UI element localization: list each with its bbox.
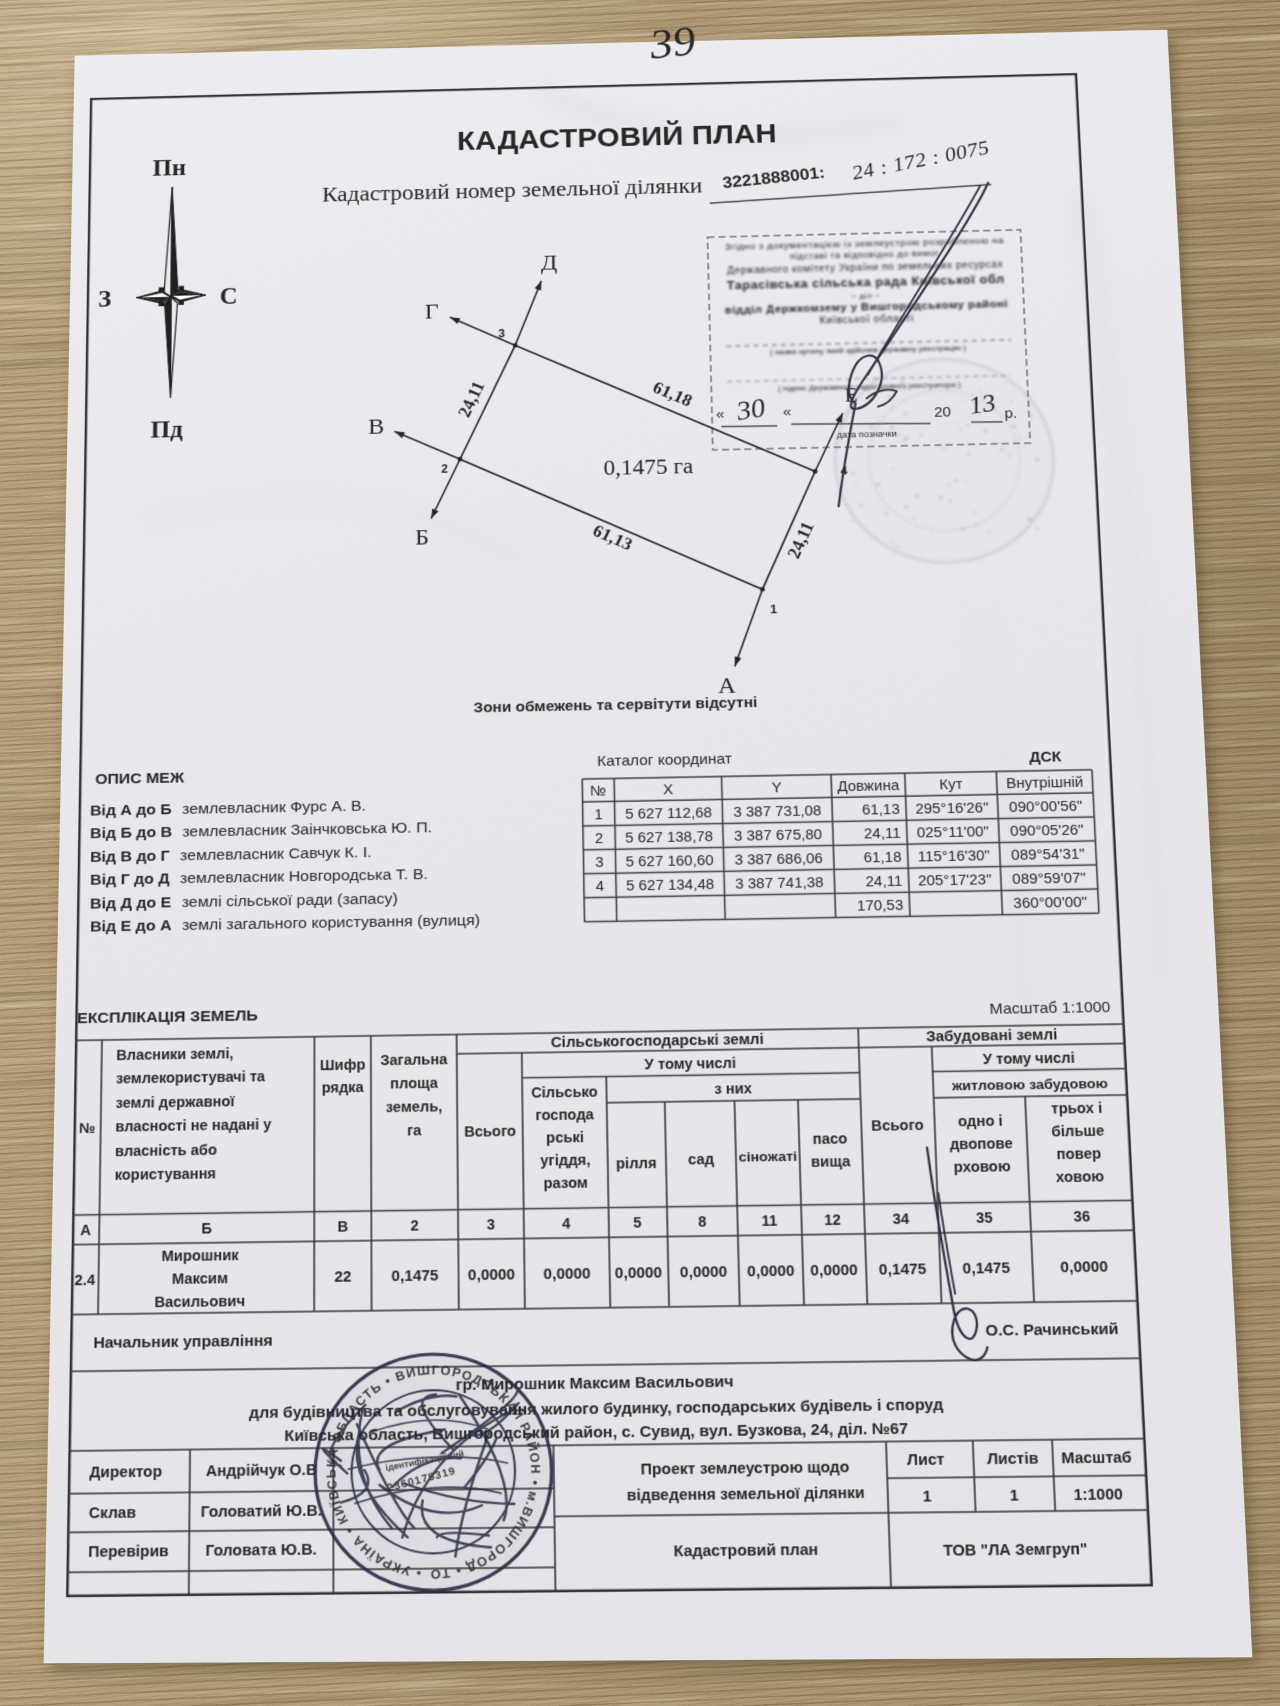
svg-text:Масштаб: Масштаб: [1061, 1449, 1132, 1467]
svg-text:вища: вища: [811, 1153, 852, 1170]
svg-text:О.С. Рачинський: О.С. Рачинський: [985, 1319, 1119, 1339]
svg-text:3 387 731,08: 3 387 731,08: [733, 802, 821, 819]
svg-text:360°00'00": 360°00'00": [1013, 894, 1088, 911]
svg-text:2: 2: [411, 1217, 419, 1234]
svg-text:А: А: [80, 1222, 92, 1239]
svg-text:24,11: 24,11: [454, 378, 489, 420]
svg-text:угіддя,: угіддя,: [540, 1152, 590, 1169]
svg-text:рховою: рховою: [953, 1158, 1011, 1175]
svg-text:2: 2: [595, 830, 604, 846]
svg-text:№: №: [79, 1120, 96, 1137]
svg-text:35: 35: [976, 1209, 993, 1226]
svg-text:36: 36: [1073, 1208, 1090, 1225]
svg-text:5 627 134,48: 5 627 134,48: [626, 876, 715, 894]
svg-text:Листів: Листів: [987, 1450, 1039, 1468]
svg-text:Начальник управління: Начальник управління: [93, 1331, 272, 1351]
svg-text:3: 3: [595, 854, 604, 870]
svg-text:24,11: 24,11: [783, 519, 818, 561]
svg-text:0,0000: 0,0000: [615, 1264, 663, 1281]
svg-text:з них: з них: [714, 1080, 753, 1097]
svg-text:3 387 675,80: 3 387 675,80: [734, 826, 823, 844]
svg-text:4: 4: [596, 878, 605, 894]
svg-text:разом: разом: [543, 1174, 588, 1191]
svg-text:Шифр: Шифр: [320, 1056, 365, 1073]
svg-text:пасо: пасо: [812, 1130, 847, 1147]
svg-text:№: №: [590, 783, 606, 799]
svg-text:Б: Б: [201, 1220, 212, 1237]
svg-text:Кут: Кут: [939, 776, 963, 792]
svg-text:У тому числі: У тому числі: [644, 1055, 736, 1073]
svg-text:2: 2: [441, 464, 448, 476]
svg-text:13: 13: [967, 389, 998, 420]
svg-text:Від Е до Аземлі загального кор: Від Е до Аземлі загального користування …: [90, 912, 480, 936]
svg-text:«: «: [716, 405, 725, 421]
svg-text:5 627 160,60: 5 627 160,60: [625, 852, 713, 870]
svg-text:ДСК: ДСК: [1029, 747, 1062, 765]
svg-text:Пн: Пн: [153, 156, 187, 182]
svg-text:Від А до Бземлевласник Фурс А.: Від А до Бземлевласник Фурс А. В.: [90, 798, 366, 820]
svg-text:Васильович: Васильович: [154, 1293, 245, 1311]
svg-text:5 627 138,78: 5 627 138,78: [625, 828, 713, 846]
svg-text:житловою забудовою: житловою забудовою: [951, 1076, 1109, 1094]
svg-text:39: 39: [646, 19, 698, 69]
svg-text:Довжина: Довжина: [837, 777, 900, 794]
svg-text:0,0000: 0,0000: [810, 1261, 858, 1279]
svg-text:4: 4: [562, 1215, 571, 1232]
svg-text:3: 3: [498, 328, 505, 340]
svg-text:5: 5: [633, 1214, 642, 1231]
svg-text:~ діл ~: ~ діл ~: [851, 291, 881, 301]
svg-text:11: 11: [761, 1212, 777, 1229]
svg-text:Кадастровий план: Кадастровий план: [674, 1541, 819, 1560]
svg-text:Від Г до Дземлевласник Новгоро: Від Г до Дземлевласник Новгородська Т. В…: [90, 866, 428, 889]
svg-text:61,13: 61,13: [862, 801, 900, 818]
svg-text:3: 3: [487, 1216, 495, 1233]
svg-text:Масштаб 1:1000: Масштаб 1:1000: [989, 997, 1111, 1016]
svg-text:30: 30: [733, 393, 767, 426]
svg-text:0,1475 га: 0,1475 га: [603, 454, 694, 480]
svg-text:Сільсько: Сільсько: [531, 1084, 598, 1101]
svg-text:ЕКСПЛІКАЦІЯ ЗЕМЕЛЬ: ЕКСПЛІКАЦІЯ ЗЕМЕЛЬ: [77, 1008, 258, 1028]
svg-text:власність або: власність або: [115, 1142, 217, 1160]
svg-text:170,53: 170,53: [857, 897, 904, 914]
svg-text:підставі та відповідно до вимо: підставі та відповідно до вимог: [790, 248, 939, 261]
svg-text:Головата Ю.В.: Головата Ю.В.: [206, 1541, 317, 1560]
svg-text:8: 8: [698, 1213, 707, 1230]
svg-text:відведення земельної ділянки: відведення земельної ділянки: [627, 1484, 865, 1504]
svg-text:Загальна: Загальна: [380, 1051, 448, 1068]
svg-text:0,1475: 0,1475: [391, 1267, 439, 1284]
svg-text:1: 1: [922, 1488, 932, 1505]
svg-text:0,0000: 0,0000: [468, 1266, 515, 1283]
svg-text:ТОВ "ЛА Земгруп": ТОВ "ЛА Земгруп": [943, 1540, 1088, 1559]
svg-text:У тому числі: У тому числі: [982, 1050, 1075, 1068]
svg-text:земель,: земель,: [386, 1098, 443, 1115]
svg-text:рські: рські: [546, 1129, 584, 1146]
svg-text:115°16'30": 115°16'30": [917, 847, 990, 864]
svg-text:двопове: двопове: [949, 1135, 1013, 1153]
svg-text:34: 34: [892, 1210, 910, 1227]
svg-text:0,1475: 0,1475: [879, 1261, 928, 1279]
svg-text:Всього: Всього: [464, 1123, 516, 1140]
svg-text:Всього: Всього: [871, 1117, 924, 1134]
svg-text:сіножаті: сіножаті: [738, 1149, 797, 1165]
svg-text:0,0000: 0,0000: [680, 1263, 728, 1280]
svg-text:3221888001:: 3221888001:: [722, 164, 826, 192]
svg-text:Г: Г: [425, 299, 439, 324]
svg-text:га: га: [407, 1122, 422, 1139]
svg-text:рядка: рядка: [322, 1079, 365, 1096]
svg-text:Проект землеустрою щодо: Проект землеустрою щодо: [641, 1458, 850, 1478]
svg-text:1: 1: [1009, 1487, 1019, 1504]
svg-text:«: «: [783, 403, 792, 419]
svg-text:Від В до Гземлевласник Савчук: Від В до Гземлевласник Савчук К. І.: [90, 844, 372, 866]
svg-text:Забудовані землі: Забудовані землі: [926, 1026, 1058, 1044]
svg-text:ОПИС МЕЖ: ОПИС МЕЖ: [95, 770, 185, 788]
svg-text:24,11: 24,11: [865, 873, 902, 890]
svg-text:0,0000: 0,0000: [1060, 1258, 1109, 1276]
svg-text:Каталог координат: Каталог координат: [597, 750, 733, 769]
svg-text:Сільськогосподарські землі: Сільськогосподарські землі: [551, 1031, 765, 1051]
svg-text:0,1475: 0,1475: [962, 1259, 1011, 1277]
svg-text:Лист: Лист: [907, 1451, 945, 1469]
svg-text:Зони обмежень та сервітути від: Зони обмежень та сервітути відсутні: [473, 693, 757, 715]
svg-text:Внутрішній: Внутрішній: [1006, 774, 1084, 791]
svg-text:22: 22: [334, 1268, 351, 1285]
svg-text:В: В: [368, 413, 384, 438]
svg-text:більше: більше: [1051, 1122, 1105, 1139]
svg-text:2.4: 2.4: [74, 1272, 96, 1289]
svg-text:В: В: [337, 1218, 348, 1235]
svg-text:Власники землі,: Власники землі,: [116, 1045, 233, 1063]
svg-text:землекористувачі та: землекористувачі та: [116, 1069, 266, 1088]
svg-text:24 : 172 : 0075: 24 : 172 : 0075: [850, 137, 992, 184]
svg-text:1: 1: [770, 604, 777, 617]
svg-text:Склав: Склав: [89, 1504, 136, 1522]
svg-text:землі державної: землі державної: [116, 1093, 235, 1111]
svg-text:205°17'23": 205°17'23": [918, 871, 992, 888]
svg-text:Максим: Максим: [172, 1270, 228, 1288]
svg-text:12: 12: [824, 1211, 841, 1228]
svg-text:025°11'00": 025°11'00": [917, 823, 990, 840]
svg-text:господа: господа: [535, 1106, 594, 1123]
svg-text:сад: сад: [688, 1151, 715, 1168]
svg-text:0,0000: 0,0000: [747, 1262, 795, 1279]
svg-text:площа: площа: [390, 1075, 439, 1092]
svg-text:Б: Б: [415, 524, 429, 550]
svg-text:Від Б до Вземлевласник Заінчко: Від Б до Вземлевласник Заінчковська Ю. П…: [90, 820, 432, 843]
svg-text:Пд: Пд: [150, 417, 183, 444]
svg-text:Тарасівська сільська рада Київ: Тарасівська сільська рада Київської обл: [727, 273, 1005, 292]
svg-text:5 627 112,68: 5 627 112,68: [625, 804, 712, 821]
svg-text:трьох і: трьох і: [1051, 1100, 1103, 1117]
svg-text:Y: Y: [771, 780, 781, 796]
svg-text:089°54'31": 089°54'31": [1011, 846, 1085, 863]
svg-text:повер: повер: [1056, 1145, 1101, 1162]
svg-text:Кадастровий номер земельної ді: Кадастровий номер земельної ділянки: [322, 173, 703, 207]
svg-text:Д: Д: [541, 250, 558, 275]
svg-text:Від Д до Еземлі сільської ради: Від Д до Еземлі сільської ради (запасу): [90, 890, 398, 912]
svg-text:0,0000: 0,0000: [543, 1265, 590, 1282]
svg-text:1:1000: 1:1000: [1073, 1486, 1123, 1504]
svg-text:3 387 741,38: 3 387 741,38: [735, 874, 824, 892]
svg-text:24,11: 24,11: [864, 825, 901, 842]
svg-text:власності не надані у: власності не надані у: [115, 1117, 272, 1136]
svg-text:КАДАСТРОВИЙ ПЛАН: КАДАСТРОВИЙ ПЛАН: [457, 118, 777, 156]
svg-text:1: 1: [594, 806, 603, 822]
svg-text:Головатий Ю.В.: Головатий Ю.В.: [201, 1502, 322, 1521]
svg-text:користування: користування: [115, 1166, 217, 1184]
svg-text:090°05'26": 090°05'26": [1010, 822, 1084, 839]
svg-text:Директор: Директор: [89, 1463, 162, 1481]
svg-text:З: З: [98, 287, 111, 313]
svg-text:295°16'26": 295°16'26": [915, 799, 989, 816]
svg-text:Андрійчук О.В: Андрійчук О.В: [206, 1461, 317, 1479]
svg-text:ховою: ховою: [1056, 1168, 1105, 1185]
svg-text:рілля: рілля: [616, 1155, 657, 1172]
svg-text:X: X: [663, 782, 673, 798]
svg-text:Мирошник: Мирошник: [161, 1247, 239, 1265]
svg-text:3 387 686,06: 3 387 686,06: [734, 850, 823, 868]
svg-text:61,18: 61,18: [863, 849, 901, 866]
svg-text:одно і: одно і: [958, 1112, 1003, 1129]
svg-text:Перевірив: Перевірив: [88, 1542, 169, 1560]
svg-text:С: С: [220, 284, 238, 310]
svg-text:089°59'07": 089°59'07": [1012, 870, 1087, 887]
svg-text:090°00'56": 090°00'56": [1009, 798, 1083, 815]
